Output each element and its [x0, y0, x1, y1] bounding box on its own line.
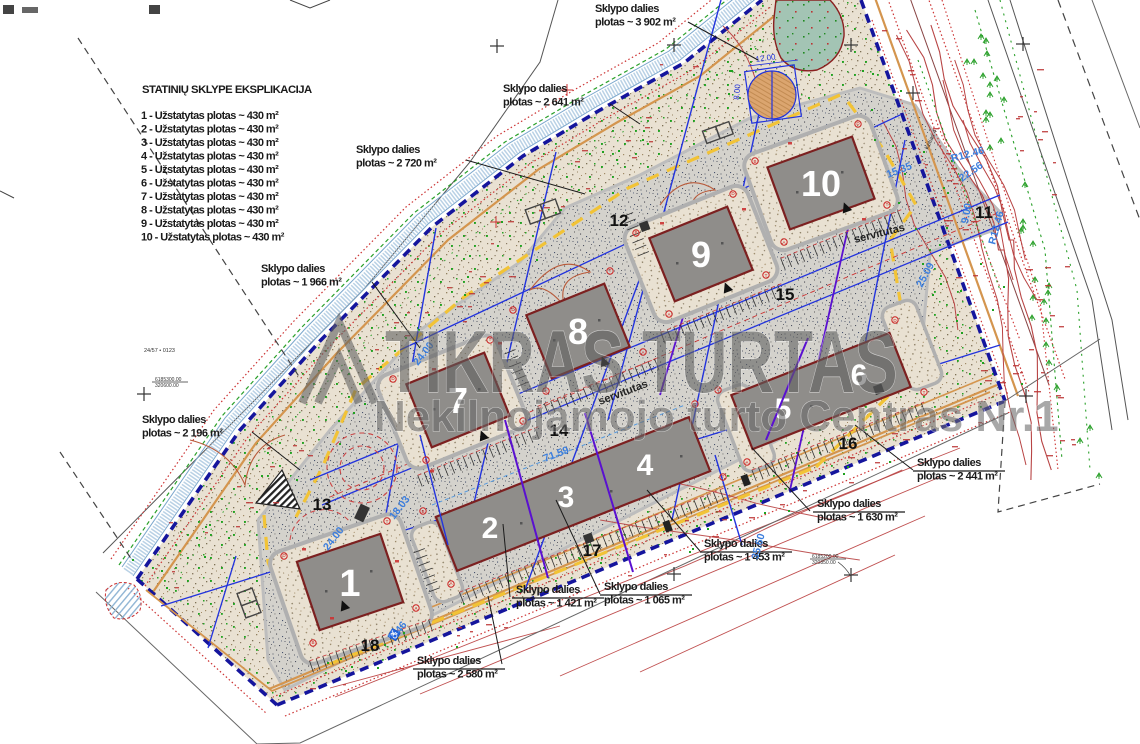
svg-text:Sklypo dalies: Sklypo dalies	[503, 83, 567, 95]
svg-text:A: A	[782, 240, 785, 245]
svg-text:8.00: 8.00	[732, 83, 742, 100]
svg-text:12: 12	[610, 211, 629, 230]
svg-text:Sklypo dalies: Sklypo dalies	[917, 457, 981, 469]
svg-text:Sklypo dalies: Sklypo dalies	[261, 263, 325, 275]
svg-text:11: 11	[975, 203, 993, 222]
svg-text:1 - Užstatytas plotas ~ 430 m²: 1 - Užstatytas plotas ~ 430 m²	[141, 110, 279, 122]
svg-text:T: T	[609, 268, 612, 273]
svg-text:T: T	[722, 474, 725, 479]
svg-text:B: B	[424, 458, 427, 463]
svg-text:Sklypo dalies: Sklypo dalies	[142, 414, 206, 426]
svg-text:9 - Užstatytas plotas ~ 430 m²: 9 - Užstatytas plotas ~ 430 m²	[141, 218, 279, 230]
svg-text:2 - Užstatytas plotas ~ 430 m²: 2 - Užstatytas plotas ~ 430 m²	[141, 124, 279, 136]
svg-text:10: 10	[801, 163, 841, 204]
svg-text:STATINIŲ SKLYPE EKSPLIKACIJA: STATINIŲ SKLYPE EKSPLIKACIJA	[142, 84, 312, 96]
svg-text:plotas ~ 2 720 m²: plotas ~ 2 720 m²	[356, 158, 437, 170]
svg-text:plotas ~ 1 630 m²: plotas ~ 1 630 m²	[817, 512, 898, 524]
svg-text:plotas ~ 2 641 m²: plotas ~ 2 641 m²	[503, 97, 584, 109]
svg-text:320850.00: 320850.00	[812, 560, 836, 566]
svg-text:Sklypo dalies: Sklypo dalies	[516, 584, 580, 596]
svg-text:13: 13	[313, 495, 332, 514]
svg-text:plotas ~ 1 421 m²: plotas ~ 1 421 m²	[516, 598, 597, 610]
svg-text:Sklypo dalies: Sklypo dalies	[417, 655, 481, 667]
svg-text:Nekilnojamojo turto Centras Nr: Nekilnojamojo turto Centras Nr.1	[374, 392, 1059, 441]
svg-text:24/57 • 0123: 24/57 • 0123	[144, 348, 175, 354]
svg-text:6 - Užstatytas plotas ~ 430 m²: 6 - Užstatytas plotas ~ 430 m²	[141, 178, 279, 190]
svg-text:plotas ~ 2 196 m²: plotas ~ 2 196 m²	[142, 428, 223, 440]
svg-text:A: A	[414, 606, 417, 611]
svg-text:B: B	[634, 230, 637, 235]
svg-text:18: 18	[361, 636, 380, 655]
svg-text:4 - Užstatytas plotas ~ 430 m²: 4 - Užstatytas plotas ~ 430 m²	[141, 151, 279, 163]
svg-text:320600.00: 320600.00	[155, 383, 179, 389]
svg-text:plotas ~ 2 441 m²: plotas ~ 2 441 m²	[917, 471, 998, 483]
svg-text:9: 9	[691, 234, 711, 275]
svg-text:plotas ~ 2 580 m²: plotas ~ 2 580 m²	[417, 669, 498, 681]
svg-text:Sklypo dalies: Sklypo dalies	[595, 3, 659, 15]
svg-text:B: B	[311, 640, 314, 645]
svg-text:B: B	[421, 509, 424, 514]
svg-text:10 - Užstatytas plotas ~ 430 m: 10 - Užstatytas plotas ~ 430 m²	[141, 232, 285, 244]
svg-text:3 - Užstatytas plotas ~ 430 m²: 3 - Užstatytas plotas ~ 430 m²	[141, 137, 279, 149]
svg-text:Sklypo dalies: Sklypo dalies	[817, 498, 881, 510]
svg-text:Sklypo dalies: Sklypo dalies	[356, 144, 420, 156]
svg-text:15: 15	[776, 285, 795, 304]
svg-text:plotas ~ 3 902 m²: plotas ~ 3 902 m²	[595, 17, 676, 29]
svg-text:T: T	[886, 202, 889, 207]
svg-text:Sklypo dalies: Sklypo dalies	[604, 581, 668, 593]
svg-text:B: B	[753, 159, 756, 164]
svg-text:1: 1	[339, 563, 360, 605]
svg-text:plotas ~ 1 966 m²: plotas ~ 1 966 m²	[261, 277, 342, 289]
svg-text:17: 17	[583, 541, 602, 560]
svg-text:5 - Užstatytas plotas ~ 430 m²: 5 - Užstatytas plotas ~ 430 m²	[141, 164, 279, 176]
svg-text:7 - Užstatytas plotas ~ 430 m²: 7 - Užstatytas plotas ~ 430 m²	[141, 191, 279, 203]
svg-text:T: T	[386, 519, 389, 524]
svg-text:A: A	[449, 581, 452, 586]
svg-text:plotas ~ 1 065 m²: plotas ~ 1 065 m²	[604, 595, 685, 607]
svg-text:A: A	[745, 460, 748, 465]
svg-text:plotas ~ 1 453 m²: plotas ~ 1 453 m²	[704, 552, 785, 564]
svg-text:T: T	[765, 273, 768, 278]
svg-text:8 - Užstatytas plotas ~ 430 m²: 8 - Užstatytas plotas ~ 430 m²	[141, 205, 279, 217]
svg-text:4: 4	[637, 449, 654, 482]
svg-text:2: 2	[482, 512, 499, 545]
